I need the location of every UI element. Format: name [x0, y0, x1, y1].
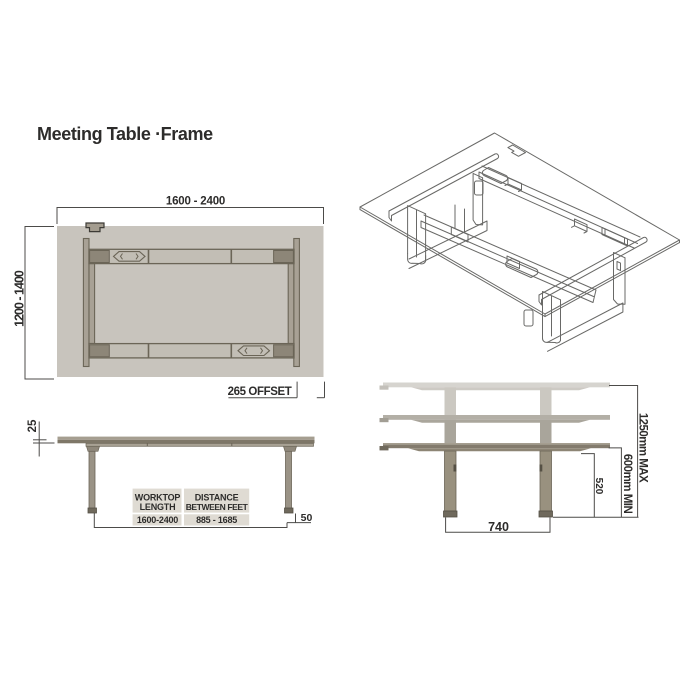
svg-text:265 OFFSET: 265 OFFSET: [228, 386, 292, 398]
svg-text:1600-2400: 1600-2400: [137, 515, 178, 525]
svg-text:520: 520: [593, 478, 604, 495]
svg-text:600mm MIN: 600mm MIN: [621, 454, 633, 514]
svg-text:Meeting Table ·Frame: Meeting Table ·Frame: [37, 124, 213, 144]
svg-text:LENGTH: LENGTH: [140, 502, 176, 512]
svg-text:WORKTOP: WORKTOP: [135, 493, 181, 503]
svg-text:885 - 1685: 885 - 1685: [196, 515, 237, 525]
svg-text:740: 740: [488, 520, 509, 534]
svg-text:50: 50: [301, 512, 313, 524]
svg-text:1250mm MAX: 1250mm MAX: [636, 413, 648, 483]
svg-text:BETWEEN FEET: BETWEEN FEET: [186, 502, 249, 512]
svg-text:25: 25: [27, 419, 39, 432]
svg-text:1200 - 1400: 1200 - 1400: [13, 270, 27, 327]
svg-text:1600 - 2400: 1600 - 2400: [166, 196, 225, 208]
svg-text:DISTANCE: DISTANCE: [195, 493, 239, 503]
